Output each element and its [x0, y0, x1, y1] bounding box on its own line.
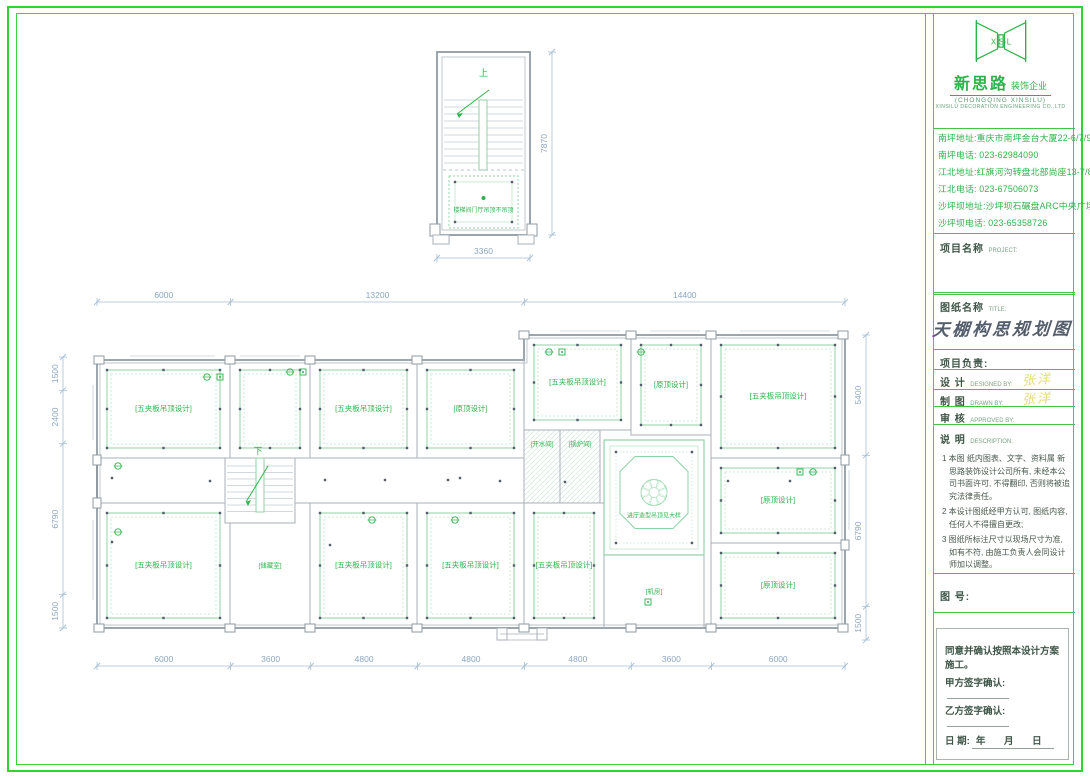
company-name: 新思路装饰企业: [950, 70, 1051, 96]
svg-text:7870: 7870: [539, 134, 549, 153]
svg-text:上: 上: [479, 68, 488, 78]
address-line: 沙坪坝电话: 023-65358726: [938, 215, 1073, 232]
drawing-name-row: 图纸名称 TITLE:: [940, 298, 1071, 316]
description-notes: 1 本图 纸内图表、文字、资料属 新思路装饰设计公司所有, 未经本公司书面许可,…: [942, 453, 1071, 575]
svg-text:下: 下: [253, 446, 262, 456]
svg-text:6790: 6790: [50, 509, 60, 528]
party-b-signature-row: 乙方签字确认:: [945, 703, 1068, 730]
drawing-number-row: 图 号:: [940, 587, 1071, 605]
svg-text:6000: 6000: [154, 290, 173, 300]
drawing-sheet: [五夹板吊顶设计][五夹板吊顶设计][原顶设计][五夹板吊顶设计][原顶设计][…: [0, 0, 1090, 778]
svg-text:[五夹板吊顶设计]: [五夹板吊顶设计]: [536, 560, 593, 570]
svg-text:4800: 4800: [462, 654, 481, 664]
date-row: 日 期:年 月 日: [945, 733, 1062, 749]
company-addresses: 南坪地址:重庆市南坪金台大厦22-6/7/9/10 南坪电话: 023-6298…: [938, 130, 1073, 232]
date-fill-line: 年 月 日: [972, 733, 1054, 749]
address-line: 江北地址:红旗河沟转盘北部尚座13-7/8/9: [938, 164, 1073, 181]
svg-text:[原顶设计]: [原顶设计]: [761, 495, 795, 505]
svg-text:6790: 6790: [853, 521, 863, 540]
svg-text:4800: 4800: [355, 654, 374, 664]
address-line: 南坪电话: 023-62984090: [938, 147, 1073, 164]
svg-text:6000: 6000: [154, 654, 173, 664]
svg-text:[储藏室]: [储藏室]: [258, 561, 281, 570]
svg-text:1500: 1500: [853, 614, 863, 633]
party-a-signature-line: [947, 689, 1009, 699]
svg-text:[机房]: [机房]: [646, 587, 663, 596]
svg-text:进厅造型吊顶见大样: 进厅造型吊顶见大样: [627, 512, 681, 520]
svg-text:[五夹板吊顶设计]: [五夹板吊顶设计]: [135, 560, 192, 570]
svg-text:[锅炉间]: [锅炉间]: [568, 439, 591, 448]
svg-text:[原顶设计]: [原顶设计]: [453, 403, 487, 413]
svg-text:3600: 3600: [261, 654, 280, 664]
address-line: 江北电话: 023-67506073: [938, 181, 1073, 198]
svg-text:[五夹板吊顶设计]: [五夹板吊顶设计]: [750, 391, 807, 401]
address-line: 沙坪坝地址:沙坪坝石碾盘ARC中央广场1/10/3: [938, 198, 1073, 215]
company-logo-area: X·S·L 新思路装饰企业 (CHONGQING XINSILU) XINSIL…: [926, 19, 1075, 110]
svg-text:2400: 2400: [50, 407, 60, 426]
party-b-signature-line: [947, 717, 1009, 727]
svg-text:5400: 5400: [853, 385, 863, 404]
svg-text:[五夹板吊顶设计]: [五夹板吊顶设计]: [442, 560, 499, 570]
svg-text:3600: 3600: [662, 654, 681, 664]
project-name-row: 项目名称 PROJECT:: [940, 239, 1071, 257]
agreement-statement: 同意并确认按照本设计方案施工。: [945, 643, 1068, 671]
note-item: 1 本图 纸内图表、文字、资料属 新思路装饰设计公司所有, 未经本公司书面许可,…: [942, 453, 1071, 503]
drawing-title: 天棚构思规划图: [931, 314, 1074, 340]
svg-text:3360: 3360: [474, 246, 493, 256]
svg-text:[五夹板吊顶设计]: [五夹板吊顶设计]: [335, 560, 392, 570]
svg-text:14400: 14400: [673, 290, 697, 300]
svg-text:[五夹板吊顶设计]: [五夹板吊顶设计]: [135, 403, 192, 413]
description-row: 说 明 DESCRIPTION:: [940, 430, 1071, 448]
svg-text:13200: 13200: [366, 290, 390, 300]
xsl-logo-mark: X·S·L: [946, 19, 1056, 63]
designer-signature: 张洋: [1021, 368, 1052, 389]
svg-text:1500: 1500: [50, 602, 60, 621]
drawn-by-row: 制 图 DRAWN BY: 张洋: [940, 392, 1071, 410]
draftsman-signature: 张洋: [1021, 387, 1052, 408]
company-sub: (CHONGQING XINSILU): [926, 97, 1075, 104]
note-item: 2 本设计图纸经甲方认可, 图纸内容, 任何人不得擅自更改;: [942, 506, 1071, 531]
svg-text:[五夹板吊顶设计]: [五夹板吊顶设计]: [549, 377, 606, 387]
svg-text:[开水间]: [开水间]: [530, 439, 553, 448]
confirmation-box: 同意并确认按照本设计方案施工。 甲方签字确认: 乙方签字确认: 日 期:年 月 …: [936, 628, 1069, 760]
title-block: X·S·L 新思路装饰企业 (CHONGQING XINSILU) XINSIL…: [925, 13, 1075, 765]
svg-text:6000: 6000: [769, 654, 788, 664]
svg-text:[五夹板吊顶设计]: [五夹板吊顶设计]: [335, 403, 392, 413]
company-sub-en: XINSILU DECORATION ENGINEERING CO.,LTD: [926, 104, 1075, 110]
svg-text:[原顶设计]: [原顶设计]: [761, 580, 795, 590]
svg-text:1500: 1500: [50, 364, 60, 383]
svg-text:楼梯间门厅吊顶不吊顶: 楼梯间门厅吊顶不吊顶: [453, 206, 513, 214]
party-a-signature-row: 甲方签字确认:: [945, 675, 1068, 702]
svg-text:4800: 4800: [568, 654, 587, 664]
address-line: 南坪地址:重庆市南坪金台大厦22-6/7/9/10: [938, 130, 1073, 147]
note-item: 3 图纸所标注尺寸以现场尺寸为准, 如有不符, 由施工负责人会同设计师加以调整。: [942, 534, 1071, 572]
svg-text:[原顶设计]: [原顶设计]: [654, 379, 688, 389]
xsl-logo-letters: X·S·L: [990, 38, 1011, 47]
